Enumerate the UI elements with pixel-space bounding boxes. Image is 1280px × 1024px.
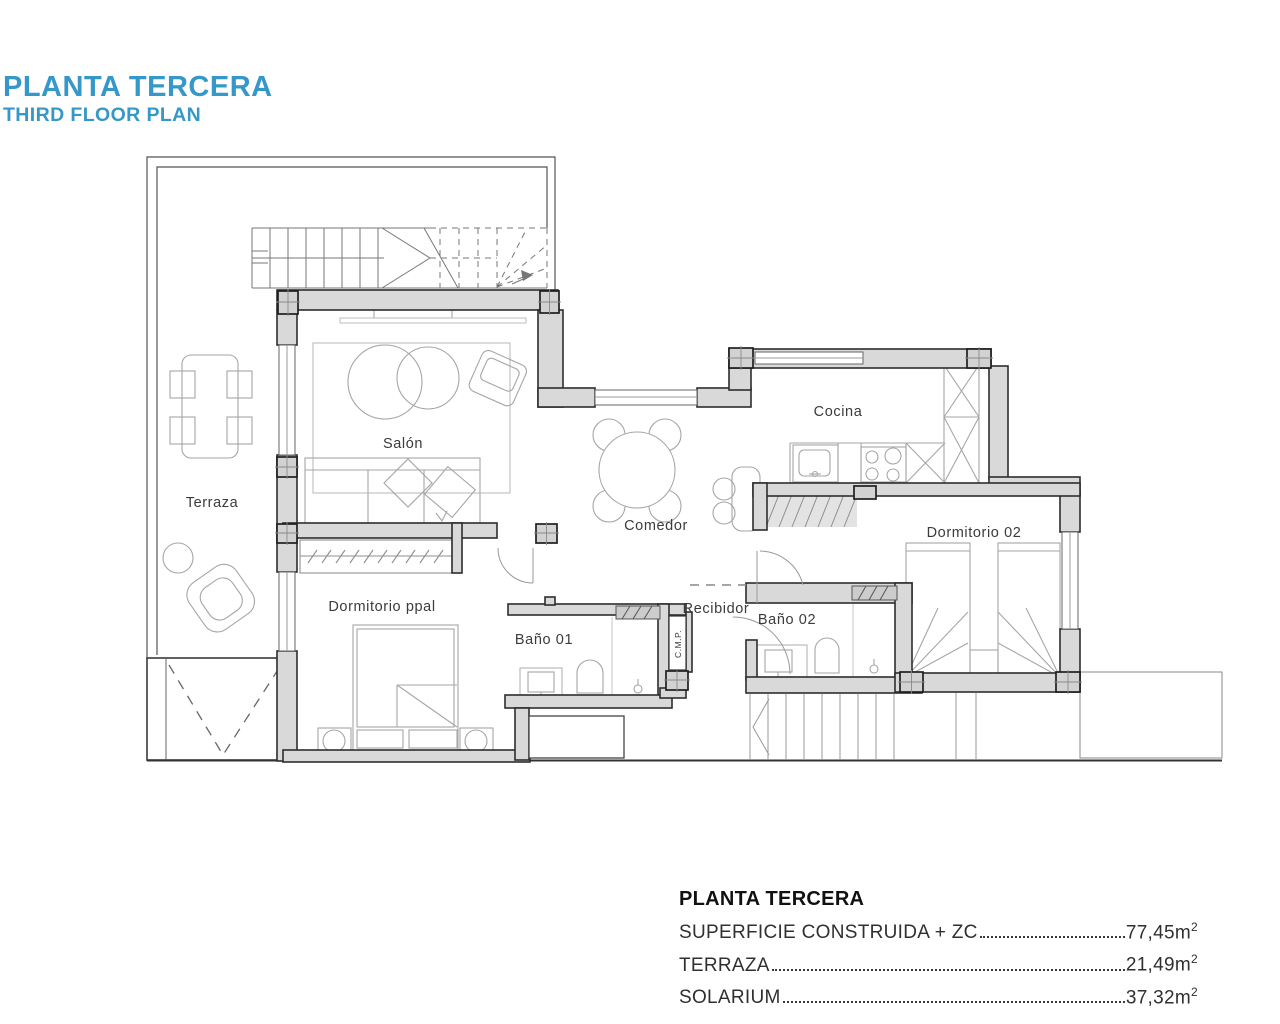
- staircase-upper: [252, 228, 547, 288]
- area-summary: PLANTA TERCERA SUPERFICIE CONSTRUIDA + Z…: [679, 888, 1198, 1011]
- room-label-bano02: Baño 02: [758, 612, 816, 628]
- beds-dorm02: [906, 543, 1060, 677]
- room-label-salon: Salón: [383, 436, 423, 452]
- bano01-fixtures: [520, 617, 642, 697]
- staircase-lower: [750, 693, 976, 759]
- dotted-leader: [772, 969, 1125, 971]
- kitchen-counter: [790, 365, 979, 483]
- lower-opening: [529, 716, 624, 758]
- floor-plan-svg: [0, 0, 1280, 1024]
- terrace-side-table: [163, 543, 193, 573]
- room-label-recibidor: Recibidor: [683, 601, 750, 617]
- comedor-table: [593, 419, 681, 522]
- room-label-cmp: C.M.P.: [673, 630, 683, 658]
- room-label-dormitorio-02: Dormitorio 02: [927, 525, 1022, 541]
- wardrobe: [300, 540, 452, 573]
- bed-ppal: [318, 625, 493, 754]
- room-label-bano01: Baño 01: [515, 632, 573, 648]
- floor-plan-page: PLANTA TERCERA THIRD FLOOR PLAN: [0, 0, 1280, 1024]
- summary-row-value: 21,49m2: [1126, 946, 1198, 978]
- tv-unit: [374, 310, 452, 318]
- summary-title: PLANTA TERCERA: [679, 888, 1198, 911]
- summary-row-value: 37,32m2: [1126, 979, 1198, 1011]
- summary-row-superficie: SUPERFICIE CONSTRUIDA + ZC 77,45m2: [679, 914, 1198, 946]
- dotted-leader: [980, 936, 1125, 938]
- salon-sofa: [305, 458, 480, 523]
- terrace-lounge-chair: [181, 558, 260, 637]
- solarium-void: [147, 658, 285, 760]
- summary-row-label: SOLARIUM: [679, 985, 781, 1011]
- bar-counter: [762, 492, 858, 527]
- salon-armchair: [467, 348, 529, 408]
- summary-row-terraza: TERRAZA 21,49m2: [679, 946, 1198, 978]
- room-label-dormitorio-ppal: Dormitorio ppal: [328, 599, 435, 615]
- summary-row-label: TERRAZA: [679, 953, 770, 979]
- summary-row-label: SUPERFICIE CONSTRUIDA + ZC: [679, 920, 978, 946]
- solarium-right: [1080, 672, 1222, 758]
- room-label-comedor: Comedor: [624, 518, 688, 534]
- room-label-cocina: Cocina: [814, 404, 863, 420]
- dotted-leader: [783, 1001, 1125, 1003]
- terrace-boundary: [147, 157, 555, 658]
- summary-row-solarium: SOLARIUM 37,32m2: [679, 979, 1198, 1011]
- summary-row-value: 77,45m2: [1126, 914, 1198, 946]
- room-label-terraza: Terraza: [186, 495, 239, 511]
